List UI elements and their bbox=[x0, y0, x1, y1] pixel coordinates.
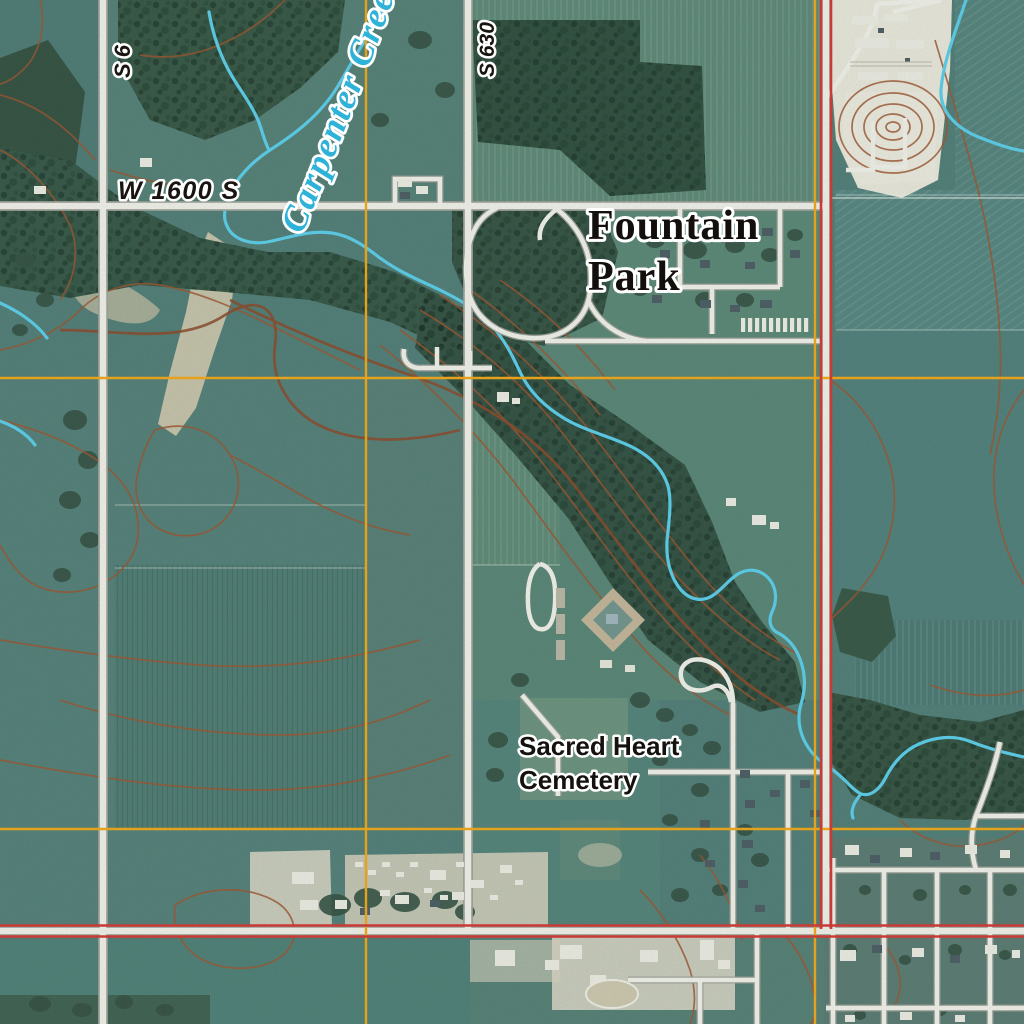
cemetery-label-line1: Sacred Heart bbox=[519, 731, 680, 761]
park-label-line1: Fountain bbox=[588, 203, 759, 249]
cemetery-label-line2: Cemetery bbox=[519, 765, 638, 795]
park-label-line2: Park bbox=[588, 254, 681, 300]
road-label-s630: S 630 bbox=[476, 22, 499, 77]
road-label-s6: S 6 bbox=[110, 44, 135, 78]
road-label-w1600s: W 1600 S bbox=[118, 177, 240, 205]
topo-map[interactable]: Carpenter Creek W 1600 S S 630 S 6 Fount… bbox=[0, 0, 1024, 1024]
map-viewport[interactable]: Carpenter Creek W 1600 S S 630 S 6 Fount… bbox=[0, 0, 1024, 1024]
imagery-grain-2 bbox=[0, 0, 1024, 1024]
